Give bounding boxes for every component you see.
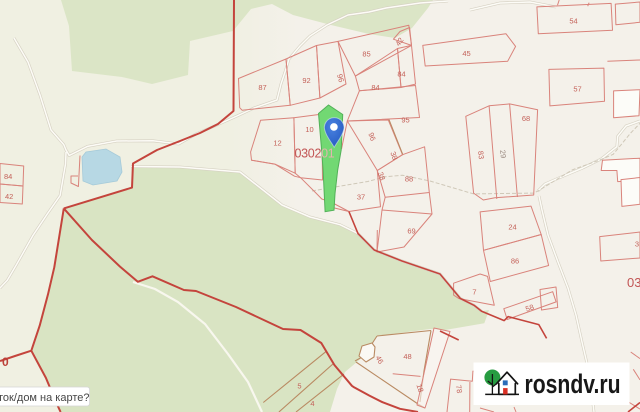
svg-text:83: 83 xyxy=(476,150,486,160)
svg-text:3: 3 xyxy=(635,240,639,249)
svg-text:85: 85 xyxy=(362,50,370,59)
svg-text:54: 54 xyxy=(569,17,577,26)
svg-text:95: 95 xyxy=(401,116,409,125)
svg-text:92: 92 xyxy=(302,76,310,85)
svg-text:68: 68 xyxy=(522,114,530,123)
svg-text:69: 69 xyxy=(407,227,415,236)
svg-text:10: 10 xyxy=(305,125,313,134)
svg-text:57: 57 xyxy=(573,85,581,94)
svg-text:78: 78 xyxy=(454,384,464,394)
svg-text:ток/дом на карте?: ток/дом на карте? xyxy=(0,392,90,404)
svg-text:4: 4 xyxy=(310,399,314,408)
svg-text:7: 7 xyxy=(472,288,476,297)
svg-text:42: 42 xyxy=(5,192,13,201)
svg-text:88: 88 xyxy=(405,175,413,184)
svg-text:12: 12 xyxy=(273,139,281,148)
svg-text:37: 37 xyxy=(357,193,365,202)
svg-text:29: 29 xyxy=(498,149,508,159)
svg-text:5: 5 xyxy=(297,382,301,391)
svg-text:030201: 030201 xyxy=(295,147,335,161)
svg-text:48: 48 xyxy=(403,352,411,361)
svg-text:rosndv.ru: rosndv.ru xyxy=(525,369,621,399)
svg-text:03: 03 xyxy=(627,275,640,290)
svg-text:86: 86 xyxy=(511,257,519,266)
svg-text:45: 45 xyxy=(462,49,470,58)
svg-text:87: 87 xyxy=(258,83,266,92)
svg-text:0: 0 xyxy=(2,355,9,369)
svg-text:84: 84 xyxy=(4,172,12,181)
svg-text:84: 84 xyxy=(371,83,379,92)
svg-text:84: 84 xyxy=(397,70,405,79)
svg-text:24: 24 xyxy=(508,223,516,232)
